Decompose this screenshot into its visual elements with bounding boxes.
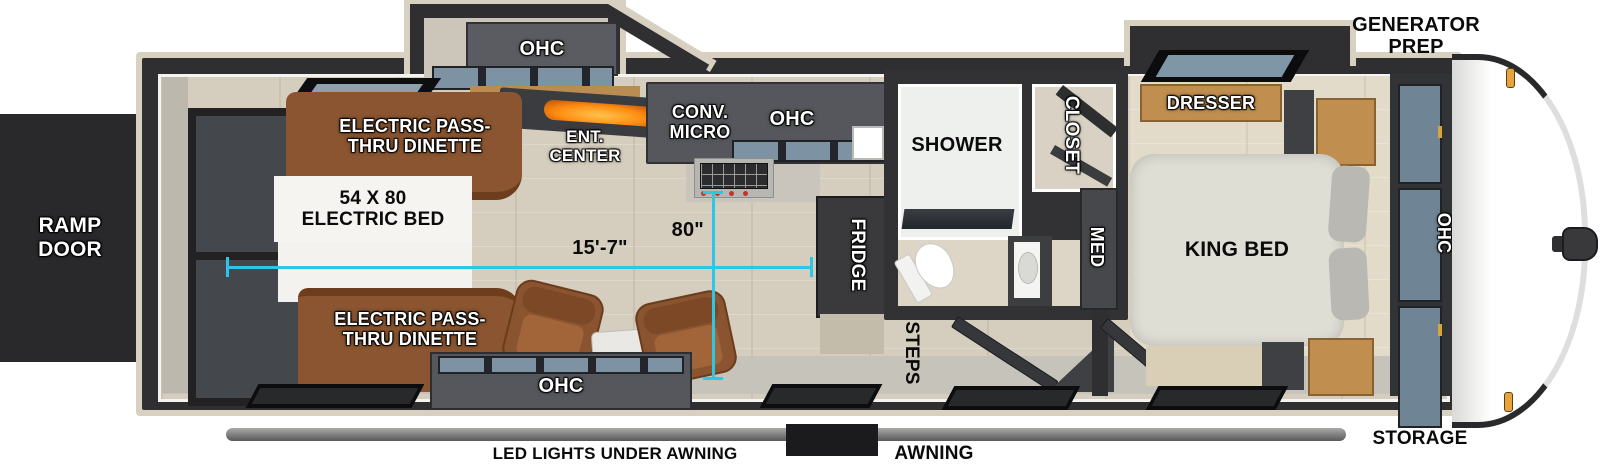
led-lights-label: LED LIGHTS UNDER AWNING	[470, 444, 760, 464]
hitch-coupler	[1562, 227, 1598, 261]
cooktop-grates	[700, 163, 768, 189]
med-cabinet-label: MED	[1089, 202, 1105, 292]
bath-vanity	[1008, 236, 1052, 306]
width-dimension-label: 80"	[642, 218, 704, 242]
electric-bed-label: 54 X 80 ELECTRIC BED	[294, 188, 452, 231]
main-entry-threshold	[760, 384, 883, 408]
wardrobe-panel	[1398, 84, 1442, 184]
bedroom-cabinet-rear	[1262, 342, 1304, 390]
entry-step-box	[786, 424, 878, 456]
marker-light-top	[1506, 68, 1515, 88]
width-dimension-tick-top	[703, 191, 723, 194]
ramp-threshold-strip	[162, 77, 188, 393]
bedroom-tv	[1141, 50, 1309, 82]
wardrobe-handle	[1438, 324, 1442, 336]
electric-bed-platform: 54 X 80 ELECTRIC BED	[274, 176, 472, 242]
storage-label: STORAGE	[1342, 428, 1498, 449]
bedroom-entry-threshold	[1146, 386, 1289, 410]
pillow	[1327, 165, 1370, 243]
pillow	[1328, 247, 1370, 321]
closet-label: CLOSET	[1062, 85, 1080, 185]
garage-door-threshold	[246, 384, 425, 408]
length-dimension-line	[227, 266, 813, 269]
fridge-base-cabinet	[820, 314, 884, 354]
conv-micro-label: CONV. MICRO	[652, 94, 748, 150]
nightstand-rear	[1308, 338, 1374, 396]
fridge-label: FRIDGE	[847, 200, 867, 310]
ramp-door: RAMP DOOR	[0, 114, 140, 362]
shower-label: SHOWER	[900, 132, 1014, 158]
garage-ohc-label: OHC	[538, 375, 583, 397]
fireplace-flames	[544, 99, 656, 127]
dinette-front-label: ELECTRIC PASS-THRU DINETTE	[332, 102, 498, 170]
tv-screen	[1156, 55, 1295, 77]
dresser-label: DRESSER	[1167, 93, 1255, 113]
wardrobe-handle	[1438, 126, 1442, 138]
width-dimension-tick-bottom	[703, 377, 723, 380]
length-dimension-tick-left	[226, 257, 229, 277]
steps-label: STEPS	[902, 308, 920, 398]
garage-ohc-glass	[438, 356, 684, 374]
hall-entry-threshold	[942, 386, 1081, 410]
sink-bowl	[1018, 252, 1038, 284]
length-dimension-tick-right	[810, 257, 813, 277]
dresser: DRESSER	[1140, 84, 1282, 122]
kitchen-window	[852, 126, 884, 160]
king-bed-label: KING BED	[1185, 238, 1289, 262]
shower-stall	[898, 84, 1022, 240]
garage-ohc-cabinet: OHC	[430, 352, 692, 410]
bed-foot-platform	[1146, 346, 1262, 386]
shower-glass-door	[902, 209, 1015, 229]
awning-label: AWNING	[866, 443, 1002, 464]
width-dimension-line	[712, 192, 715, 380]
ramp-door-label: RAMP DOOR	[22, 214, 118, 261]
bedroom-ohc-label: OHC	[1436, 188, 1452, 278]
floor-plan: RAMP DOOR OHC ENT. CENTER ELECTRIC PASS-…	[0, 0, 1600, 467]
wardrobe-panel	[1398, 306, 1442, 428]
marker-light-bottom	[1504, 392, 1513, 412]
ent-center-label: ENT. CENTER	[538, 126, 632, 166]
generator-prep-label: GENERATOR PREP	[1332, 12, 1500, 60]
slideout-ohc-label: OHC	[519, 38, 564, 60]
kitchen-ohc-label: OHC	[758, 106, 826, 132]
king-bed: KING BED	[1130, 154, 1344, 346]
